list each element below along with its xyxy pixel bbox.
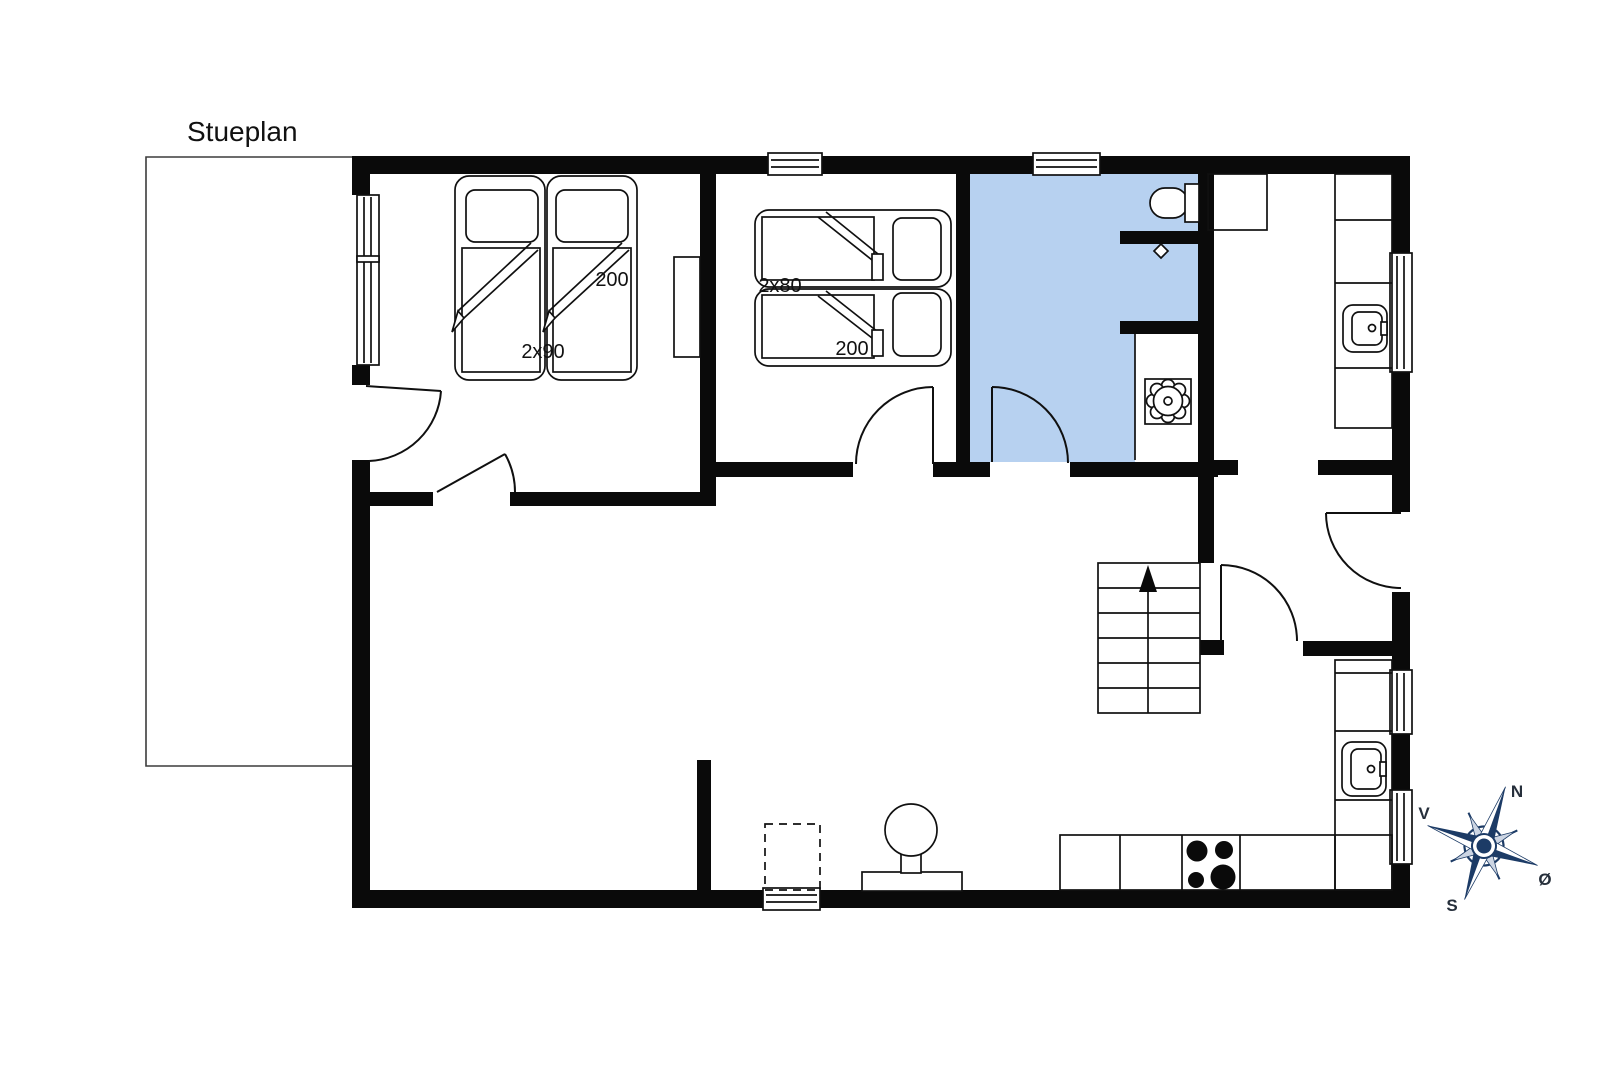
wall-bathroom-west	[956, 174, 970, 464]
kitchen-sink-icon	[1342, 742, 1386, 796]
compass-label-south: S	[1446, 896, 1457, 915]
washing-machine-flower	[1147, 380, 1190, 423]
pillow	[556, 190, 628, 242]
wall-bathroom-south-b	[1070, 462, 1218, 477]
wall-shower-stub-bottom	[1120, 321, 1200, 334]
utility-counter	[1335, 174, 1392, 428]
blanket-edge	[872, 254, 883, 280]
floor-plan-page: Stueplan	[0, 0, 1600, 1066]
bed-width-label: 2x90	[521, 341, 564, 363]
wall-living-partition	[697, 760, 711, 892]
floor-plan-svg: 200 2x90 2x80 200	[0, 0, 1600, 1066]
wall-utility-south-a	[1198, 460, 1238, 475]
wall-hall-west	[1198, 174, 1214, 563]
doors	[366, 386, 1401, 641]
compass-label-east: Ø	[1538, 870, 1551, 889]
door-bedroom1	[437, 454, 515, 492]
window-bedroom2-north	[768, 153, 822, 175]
wall-utility-south-b	[1318, 460, 1392, 475]
pillow	[893, 293, 941, 356]
wall-bedroom2-south-b	[933, 462, 972, 477]
bed-width-label: 2x80	[758, 275, 801, 297]
stairs	[1098, 563, 1200, 713]
pillow	[893, 218, 941, 280]
washing-machine-icon	[1145, 379, 1191, 424]
wall-hall-west-foot	[1198, 640, 1224, 655]
door-bedroom2	[856, 387, 933, 464]
door-bedroom1-exterior	[366, 386, 441, 461]
bed-length-label: 200	[835, 338, 868, 360]
utility-room	[1208, 174, 1392, 428]
wall-hall-south	[1303, 641, 1410, 656]
opening-right-door	[1392, 512, 1410, 592]
utility-sink-icon	[1343, 305, 1387, 352]
compass-rose-icon: N Ø S V	[1408, 766, 1559, 919]
wall-bathroom-south-a	[970, 462, 990, 477]
blanket-edge	[872, 330, 883, 356]
window-bedroom1-west	[357, 195, 379, 365]
wardrobe	[674, 257, 700, 357]
window-bathroom-north	[1033, 153, 1100, 175]
bedroom2-furniture: 2x80 200	[755, 210, 951, 366]
pillow	[466, 190, 538, 242]
door-hall	[1221, 565, 1297, 641]
hob-icon	[1187, 841, 1236, 890]
wall-bedroom-divider	[700, 174, 716, 506]
window-utility-east	[1390, 253, 1412, 372]
bedroom1-furniture: 200 2x90	[452, 176, 700, 380]
terrace-outline	[146, 157, 362, 766]
wall-bedroom2-south-a	[700, 462, 853, 477]
dashed-outline	[765, 824, 820, 890]
door-exterior-east	[1326, 513, 1401, 588]
wall-shower-stub-top	[1120, 231, 1200, 244]
bed-length-label: 200	[595, 269, 628, 291]
compass-label-north: N	[1511, 782, 1523, 801]
window-kitchen-east-1	[1390, 670, 1412, 734]
compass-label-west: V	[1418, 804, 1430, 823]
wall-bedroom1-south-b	[510, 492, 702, 506]
utility-corner-counter	[1208, 174, 1267, 230]
window-living-south	[763, 888, 820, 910]
opening-left-door	[352, 385, 370, 460]
living-room-items	[765, 804, 962, 891]
wall-bedroom1-south-a	[370, 492, 433, 506]
wall-exterior-bottom	[352, 890, 1410, 908]
wall-exterior-top	[352, 156, 1410, 174]
toilet-icon	[1150, 184, 1199, 222]
window-kitchen-east-2	[1390, 790, 1412, 864]
wood-stove-icon	[862, 804, 962, 891]
